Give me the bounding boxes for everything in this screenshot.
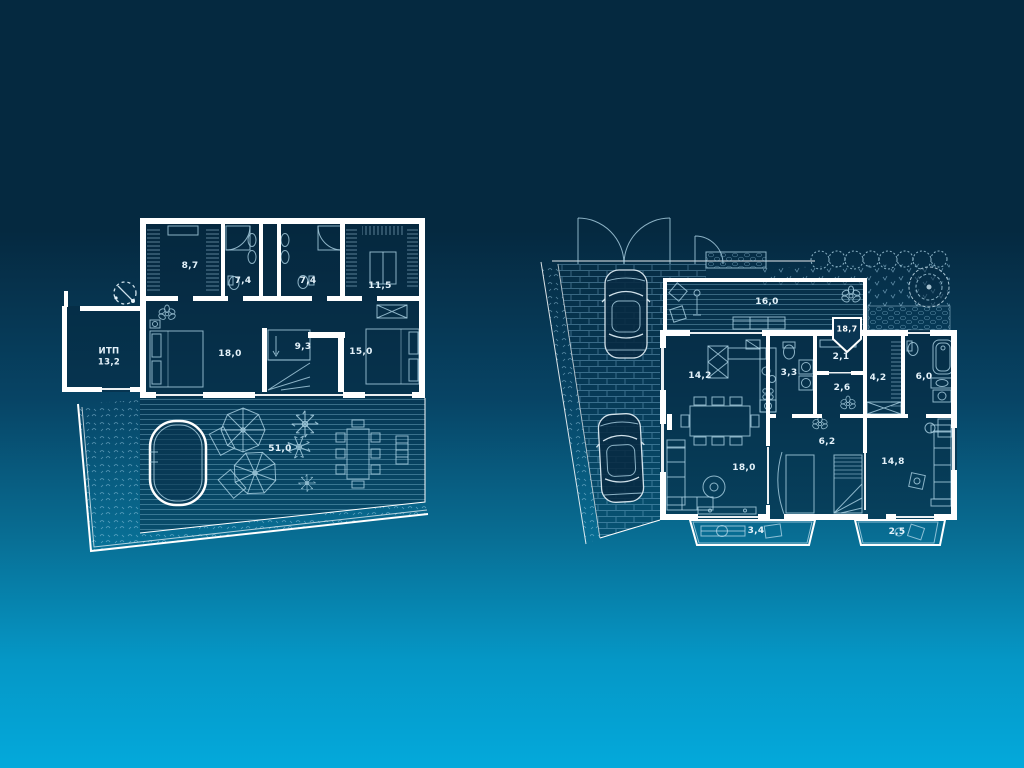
floor-plans-canvas (0, 0, 1024, 768)
pool (150, 421, 206, 505)
gate-arcs (578, 218, 723, 264)
blueprint-scene: 8,7 7,4 7,4 11,5 ИТП 13,2 18,0 9,3 15,0 … (0, 0, 1024, 768)
itp-room-floor (62, 306, 142, 392)
umbrella-icon (221, 408, 265, 452)
car-icon (595, 413, 648, 503)
car-icon (602, 270, 650, 358)
left-plan (62, 218, 428, 551)
porch (690, 520, 815, 545)
pebble-band (868, 306, 950, 330)
tree-icon (909, 267, 949, 307)
house-floor (660, 330, 957, 520)
compass-icon (114, 282, 136, 304)
rubble-strip (706, 252, 766, 268)
right-plan (541, 218, 957, 545)
porch (855, 520, 945, 545)
